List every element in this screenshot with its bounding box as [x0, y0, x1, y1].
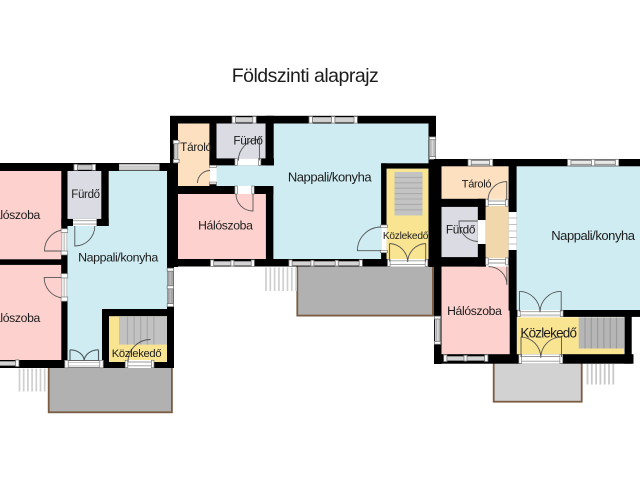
svg-text:Földszinti alaprajz: Földszinti alaprajz	[232, 65, 379, 87]
svg-text:Közlekedő: Közlekedő	[112, 348, 162, 360]
svg-text:Nappali/konyha: Nappali/konyha	[78, 251, 158, 265]
svg-text:Hálószoba: Hálószoba	[0, 208, 41, 222]
svg-text:Hálószoba: Hálószoba	[447, 304, 502, 318]
svg-text:Hálószoba: Hálószoba	[198, 219, 253, 233]
svg-text:Fürdő: Fürdő	[71, 189, 100, 201]
svg-text:Fürdő: Fürdő	[233, 134, 263, 148]
svg-text:Közlekedő: Közlekedő	[383, 231, 429, 242]
svg-text:Hálószoba: Hálószoba	[0, 311, 41, 325]
svg-text:Nappali/konyha: Nappali/konyha	[288, 170, 373, 185]
svg-text:Fürdő: Fürdő	[446, 223, 476, 237]
svg-text:Nappali/konyha: Nappali/konyha	[551, 228, 636, 243]
svg-text:Tároló: Tároló	[180, 140, 212, 154]
svg-text:Tároló: Tároló	[462, 179, 492, 191]
svg-text:Közlekedő: Közlekedő	[520, 325, 576, 340]
